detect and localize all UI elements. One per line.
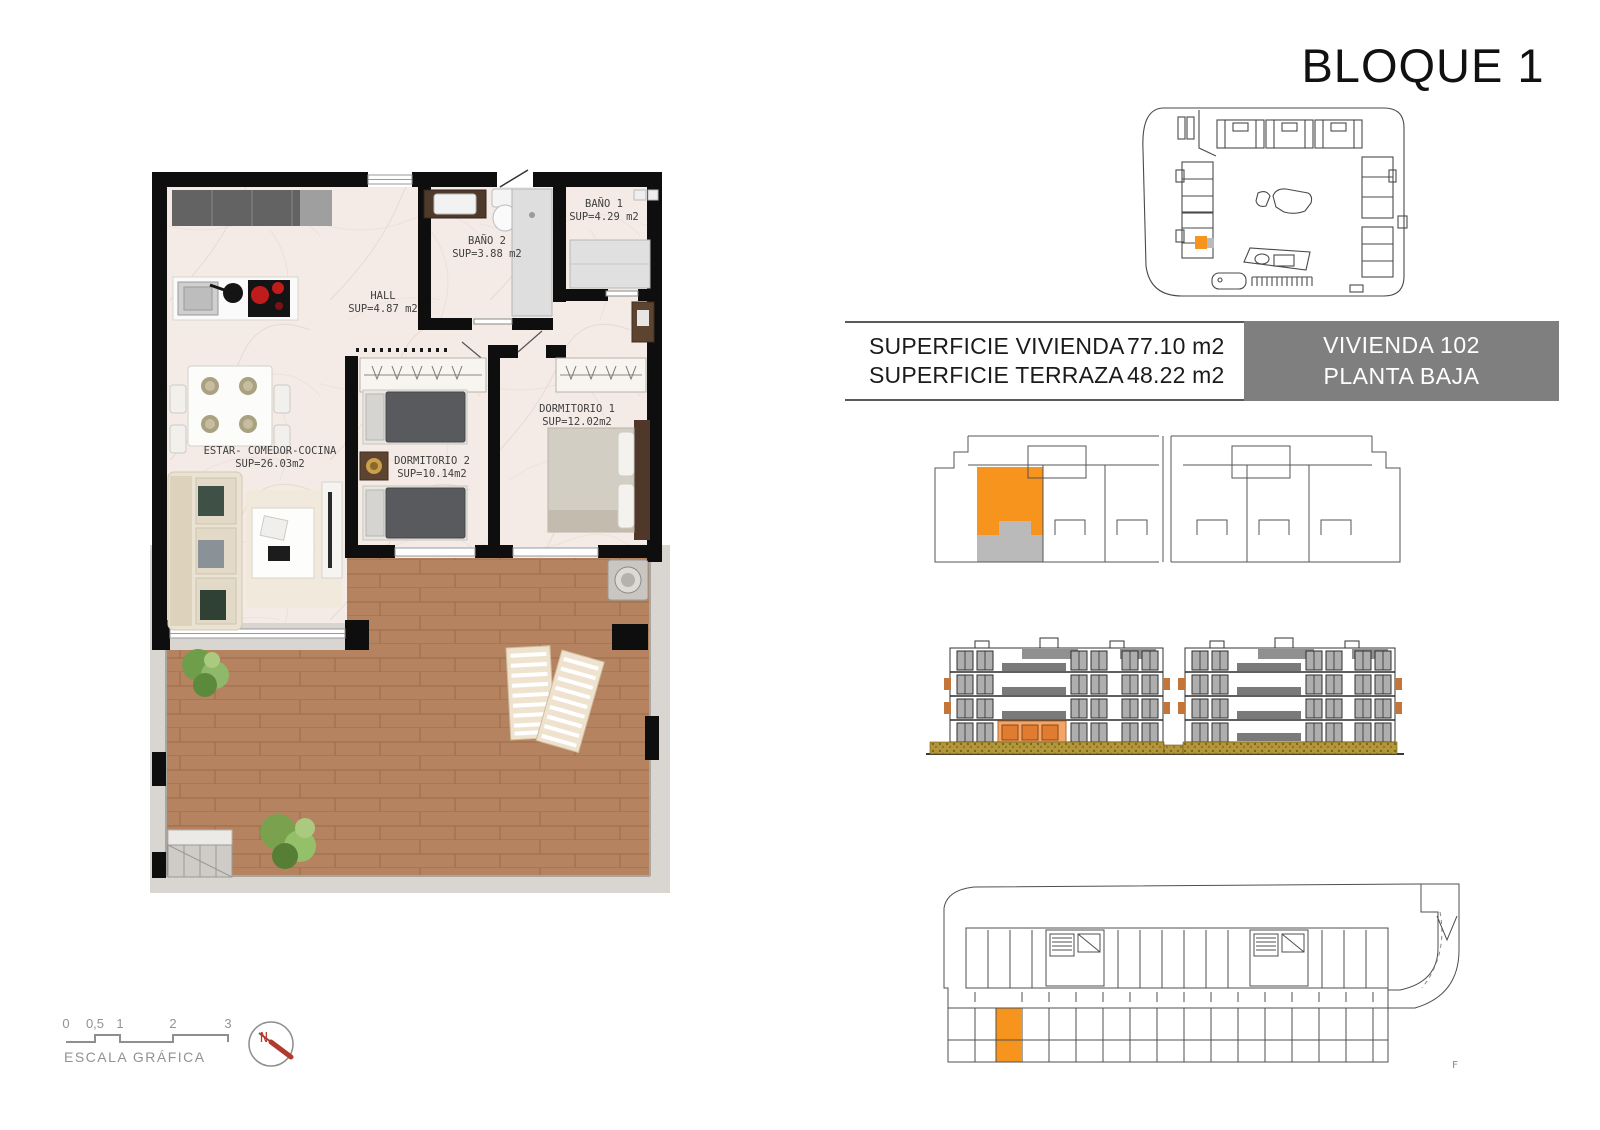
dorm1-label: DORMITORIO 1 (539, 403, 615, 415)
ramp-arrow-icon (1437, 916, 1457, 940)
bano2-label: BAÑO 2 (468, 234, 506, 247)
bano1-label: BAÑO 1 (585, 197, 623, 210)
site-key-plan (1143, 108, 1407, 296)
stair-core-icon (1250, 930, 1308, 986)
elevation-left-building (944, 638, 1170, 742)
elevations (926, 638, 1404, 754)
scale-tick-1: 1 (116, 1016, 123, 1031)
apartment-floor-plan: HALL SUP=4.87 m2 BAÑO 2 SUP=3.88 m2 BAÑO… (150, 170, 670, 893)
garage-plan: F (944, 884, 1459, 1071)
scale-tick-2: 2 (169, 1016, 176, 1031)
hatch-icon (1252, 277, 1312, 286)
strip-center-joint (1163, 436, 1171, 562)
balcony-accent (1178, 702, 1185, 714)
garage-corner-mark: F (1452, 1060, 1458, 1071)
hedge (1164, 745, 1183, 754)
fridge (300, 190, 332, 226)
site-buildings (1176, 110, 1396, 277)
plan-sheet: BLOQUE 1 SUPERFICIE VIVIENDA 77.10 m2 SU… (0, 0, 1600, 1130)
compass-icon: N (249, 1022, 293, 1066)
site-highlight-terrace (1207, 238, 1214, 248)
parking-stall-lines-lower (975, 1008, 1373, 1062)
strip-left-half (935, 436, 1159, 562)
balcony-accent (1178, 678, 1185, 690)
cushion (200, 590, 226, 620)
dining-set (170, 366, 290, 453)
balcony-accent (1395, 678, 1402, 690)
cushion (198, 540, 224, 568)
elevation-right-building (1178, 638, 1402, 742)
ramp-centerline (1422, 912, 1442, 988)
garage-upper-band (966, 928, 1388, 988)
hall-area: SUP=4.87 m2 (348, 303, 418, 315)
living-room (168, 472, 342, 630)
hedge (930, 742, 1164, 754)
hall-label: HALL (370, 290, 395, 302)
site-highlight-unit (1195, 236, 1207, 249)
sink-icon (434, 194, 476, 214)
ramp-outer (1388, 884, 1459, 1008)
bano2-area: SUP=3.88 m2 (452, 248, 522, 260)
dorm2-area: SUP=10.14m2 (397, 468, 467, 480)
pool-icon (1273, 189, 1312, 213)
headboard-wall (634, 420, 650, 540)
estar-area: SUP=26.03m2 (235, 458, 305, 470)
stair-landing (168, 830, 232, 845)
balcony-accent (1163, 702, 1170, 714)
scale-tick-05: 0,5 (86, 1016, 104, 1031)
compass-north-label: N (260, 1031, 268, 1046)
hedge (1183, 742, 1397, 754)
coffee-table (252, 508, 314, 578)
stairs-icon (168, 845, 232, 877)
dorm2-label: DORMITORIO 2 (394, 455, 470, 467)
garage-top-boundary (944, 884, 1421, 908)
bano1-area: SUP=4.29 m2 (569, 211, 639, 223)
floor-strip-plan (935, 436, 1400, 562)
scale-bar: 0 0,5 1 2 3 ESCALA GRÁFICA (62, 1016, 231, 1065)
balcony-accent (1395, 702, 1402, 714)
scale-tick-3: 3 (224, 1016, 231, 1031)
cushion (198, 486, 224, 516)
stall-ticks (975, 992, 1373, 1002)
garage-highlight-stall (996, 1008, 1021, 1062)
dining-table (188, 366, 272, 446)
scale-caption: ESCALA GRÁFICA (64, 1049, 206, 1065)
scale-bar-line (66, 1035, 228, 1042)
balcony-accent (944, 678, 951, 690)
balcony-accent (1163, 678, 1170, 690)
compass-needle (271, 1042, 291, 1057)
estar-label: ESTAR- COMEDOR-COCINA (204, 445, 337, 457)
tv-icon (328, 492, 332, 568)
dorm1-area: SUP=12.02m2 (542, 416, 612, 428)
stair-core-icon (1046, 930, 1104, 986)
drawings: HALL SUP=4.87 m2 BAÑO 2 SUP=3.88 m2 BAÑO… (0, 0, 1600, 1130)
balcony-accent (944, 702, 951, 714)
scale-tick-0: 0 (62, 1016, 69, 1031)
strip-right-half (1171, 436, 1400, 562)
parking-stall-lines-upper (988, 930, 1366, 988)
ramp-inner (1388, 884, 1438, 990)
